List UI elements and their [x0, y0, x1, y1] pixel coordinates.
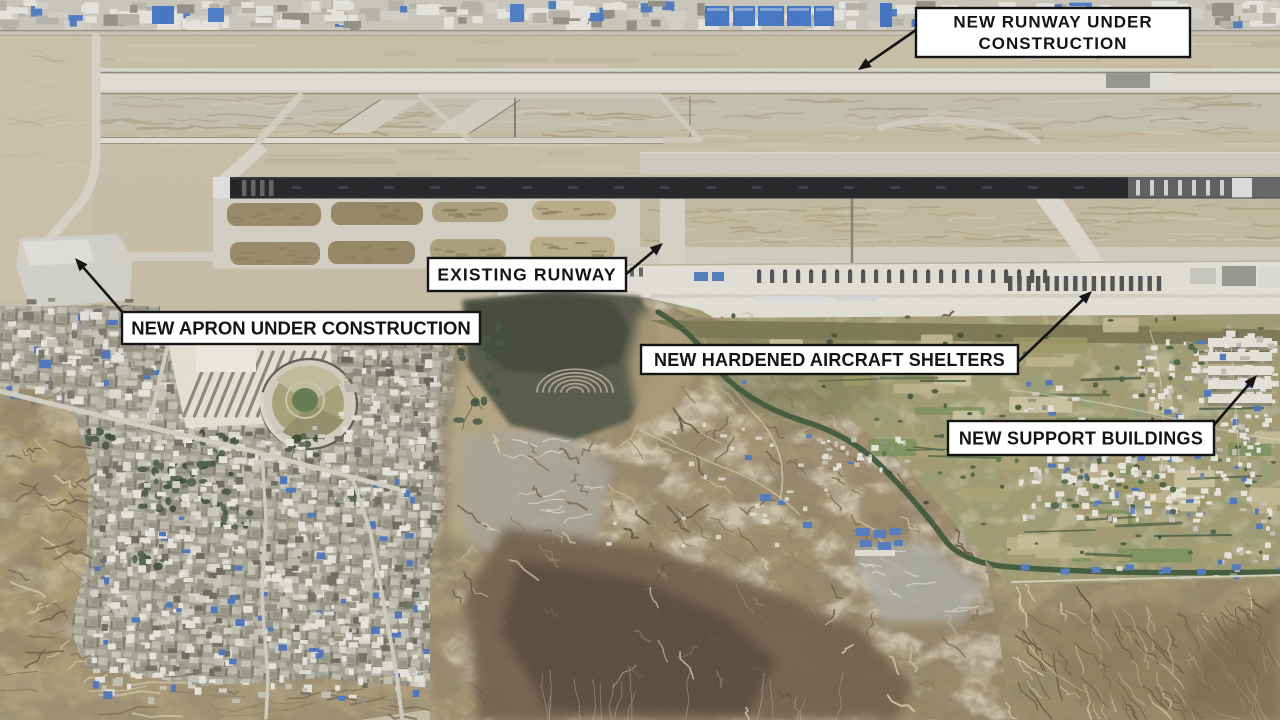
- svg-text:NEW HARDENED AIRCRAFT SHELTERS: NEW HARDENED AIRCRAFT SHELTERS: [654, 350, 1005, 370]
- svg-text:NEW APRON UNDER CONSTRUCTION: NEW APRON UNDER CONSTRUCTION: [131, 318, 471, 339]
- svg-text:NEW SUPPORT BUILDINGS: NEW SUPPORT BUILDINGS: [959, 428, 1203, 448]
- svg-text:EXISTING RUNWAY: EXISTING RUNWAY: [437, 265, 616, 285]
- svg-text:NEW RUNWAY UNDER: NEW RUNWAY UNDER: [953, 13, 1152, 32]
- svg-text:CONSTRUCTION: CONSTRUCTION: [979, 34, 1128, 53]
